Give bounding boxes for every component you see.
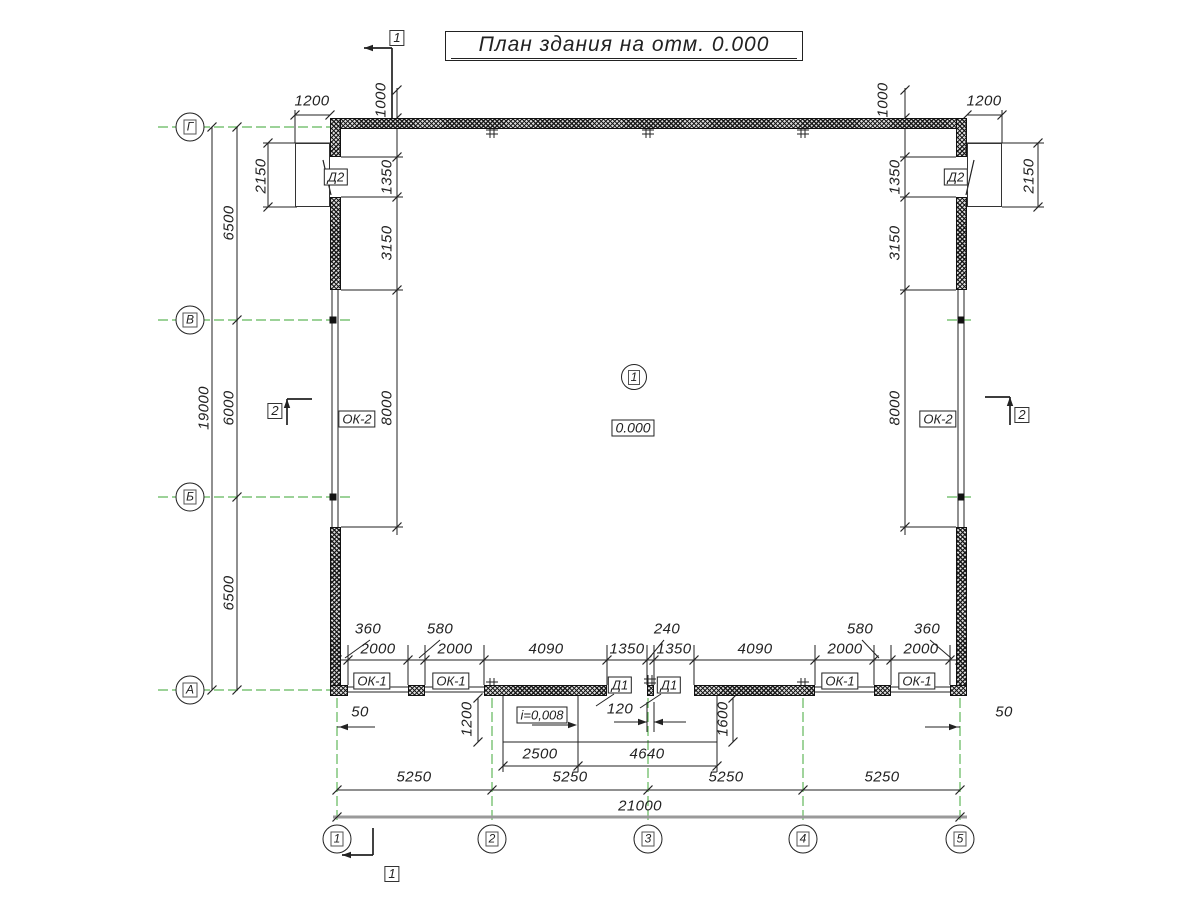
axis-row-b: Б [176, 483, 205, 512]
axis-col-3: 3 [634, 825, 663, 854]
dim-left-span-ba: 6500 [222, 576, 237, 611]
axis-col-2-label: 2 [486, 832, 499, 847]
axis-row-a: А [176, 676, 205, 705]
pilaster-marks [330, 317, 965, 695]
section-mark-1-top: 1 [389, 30, 404, 46]
wall-bottom-seg6 [950, 685, 967, 696]
axis-row-a-label: А [183, 683, 197, 698]
wall-left-seg3 [330, 527, 341, 696]
dim-edge-r: 50 [995, 705, 1013, 720]
axis-col-4: 4 [789, 825, 818, 854]
dim-chain-6: 4090 [738, 642, 773, 657]
dim-left-span-vb: 6000 [222, 391, 237, 426]
axis-col-5: 5 [946, 825, 975, 854]
wall-bottom-seg1 [330, 685, 348, 696]
dim-bottom-center-pier: 240 [654, 622, 680, 637]
door-tag-d1-right: Д1 [657, 677, 681, 694]
section-mark-1-bottom: 1 [384, 866, 399, 882]
dim-chain-8: 2000 [904, 642, 939, 657]
axis-row-g: Г [176, 113, 205, 142]
wall-top [330, 118, 967, 129]
wall-left-seg1 [330, 118, 341, 157]
door-tag-d1-left: Д1 [608, 677, 632, 694]
dim-span-4: 5250 [865, 770, 900, 785]
floor-plan-drawing: План здания на отм. 0.000 Г В Б А 1 2 3 … [0, 0, 1200, 900]
wall-bottom-pier [647, 685, 654, 696]
dim-left-span-gv: 6500 [222, 206, 237, 241]
window-tag-ok1-3: ОК-1 [821, 673, 858, 690]
dim-bottom-corner-r: 360 [914, 622, 940, 637]
dim-platform-width: 4640 [630, 747, 665, 762]
dim-right-window: 8000 [888, 391, 903, 426]
dim-left-window: 8000 [380, 391, 395, 426]
window-tag-ok1-1: ОК-1 [353, 673, 390, 690]
dim-left-porch-height: 2150 [254, 159, 269, 194]
dim-span-1: 5250 [397, 770, 432, 785]
dim-edge-l: 50 [351, 705, 369, 720]
drawing-title-box: План здания на отм. 0.000 [445, 31, 803, 61]
axis-col-2: 2 [478, 825, 507, 854]
column-marks [486, 126, 809, 690]
dim-right-porch-width: 1200 [967, 94, 1002, 109]
door-tag-d2-left: Д2 [324, 169, 348, 186]
axis-col-5-label: 5 [954, 832, 967, 847]
dim-left-porch-width: 1200 [295, 94, 330, 109]
window-tag-ok1-2: ОК-1 [432, 673, 469, 690]
dim-chain-5: 1350 [657, 642, 692, 657]
dim-right-door: 1350 [888, 160, 903, 195]
axis-col-4-label: 4 [797, 832, 810, 847]
elevation-mark: 0.000 [611, 420, 654, 437]
wall-bottom-seg2 [408, 685, 425, 696]
axis-row-b-label: Б [183, 490, 197, 505]
dim-bottom-corner-l: 360 [355, 622, 381, 637]
axis-row-g-label: Г [184, 120, 197, 135]
axis-col-1: 1 [323, 825, 352, 854]
slope-tag: i=0,008 [516, 707, 567, 724]
room-number: 1 [628, 370, 641, 385]
dim-axis-to-jamb: 120 [607, 702, 633, 717]
window-tag-ok1-4: ОК-1 [898, 673, 935, 690]
room-number-bubble: 1 [621, 364, 647, 390]
wall-bottom-seg3 [484, 685, 607, 696]
dim-total-width: 21000 [618, 799, 662, 814]
dim-ramp-depth: 1200 [460, 702, 475, 737]
window-tag-ok2-right: ОК-2 [919, 411, 956, 428]
section-mark-2-right: 2 [1014, 407, 1029, 423]
drawing-title: План здания на отм. 0.000 [451, 33, 796, 59]
dim-span-3: 5250 [709, 770, 744, 785]
wall-left-seg2 [330, 197, 341, 290]
wall-right-seg3 [956, 527, 967, 696]
porch-right [967, 143, 1002, 207]
door-tag-d2-right: Д2 [944, 169, 968, 186]
axis-row-v-label: В [183, 313, 197, 328]
dim-left-total: 19000 [197, 386, 212, 430]
dim-platform-depth: 1600 [716, 702, 731, 737]
dim-chain-2: 2000 [438, 642, 473, 657]
dim-bottom-pier-r: 580 [847, 622, 873, 637]
dim-right-pier: 3150 [888, 226, 903, 261]
axis-row-v: В [176, 306, 205, 335]
axis-col-3-label: 3 [642, 832, 655, 847]
window-tag-ok2-left: ОК-2 [338, 411, 375, 428]
dim-chain-7: 2000 [828, 642, 863, 657]
dim-left-door: 1350 [380, 160, 395, 195]
door-leaves [323, 160, 974, 195]
axis-col-1-label: 1 [331, 832, 344, 847]
dim-ramp-width: 2500 [523, 747, 558, 762]
dim-left-pier: 3150 [380, 226, 395, 261]
dim-left-top-offset: 1000 [374, 83, 389, 118]
section-mark-2-left: 2 [267, 403, 282, 419]
dim-bottom-pier-l: 580 [427, 622, 453, 637]
dim-chain-3: 4090 [529, 642, 564, 657]
dim-chain-1: 2000 [361, 642, 396, 657]
wall-right-seg2 [956, 197, 967, 290]
dim-right-porch-height: 2150 [1022, 159, 1037, 194]
wall-bottom-seg4 [694, 685, 815, 696]
wall-bottom-seg5 [874, 685, 891, 696]
dim-span-2: 5250 [553, 770, 588, 785]
dim-right-top-offset: 1000 [876, 83, 891, 118]
wall-right-seg1 [956, 118, 967, 157]
dim-chain-4: 1350 [610, 642, 645, 657]
